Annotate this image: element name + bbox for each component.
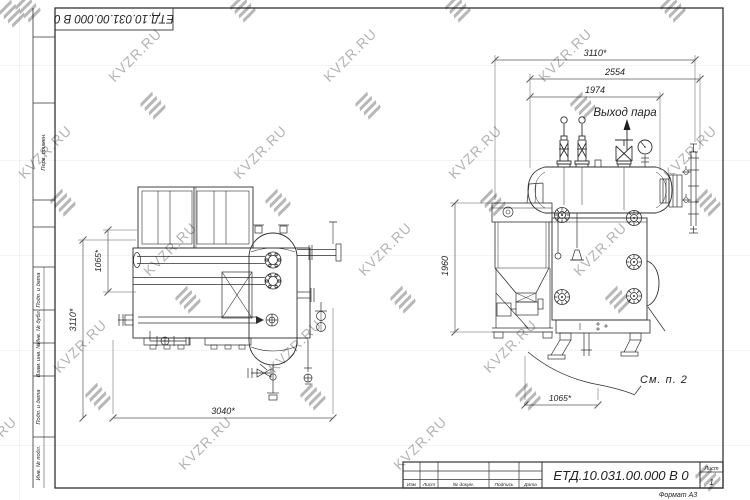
sheet-number: 1 [709,478,713,487]
scan-artifact-line [0,445,750,446]
sheet-cell-label: Лист [703,466,719,472]
scan-artifact-line [0,65,750,66]
title-doc-number: ЕТД.10.031.00.000 В 0 [553,468,689,483]
format-note: Формат А3 [659,492,697,499]
scan-artifact-line-vertical [19,0,20,500]
side-level-column [660,144,699,233]
side-label-perv-primen: Перв. примен. [41,133,47,170]
steam-outlet-label: Выход пара [593,107,656,119]
plan-platform [138,187,253,248]
see-item-note: См. п. 2 [640,374,688,386]
top-stamp: ЕТД.10.031.00.000 В 0 [54,8,174,30]
plan-right-fittings [297,222,341,332]
drawing-sheet: Перв. примен. Подп. и дата Инв. № дубл. … [0,0,750,500]
side-body [552,208,665,332]
side-dim-overall-text: 3110* [584,48,607,58]
side-foundation-leader [528,352,641,395]
plan-drum [249,225,297,365]
side-dim-height-text: 1960 [440,256,450,276]
rev-col-data: Дата [523,482,537,488]
side-base [548,320,650,359]
scan-artifact-line [0,350,750,351]
plan-view: 3110* 1065* 3040* [68,187,341,422]
side-label-podp-data-2: Подп. и дата [36,389,42,424]
rev-col-ndokum: № докум. [453,482,474,488]
plan-pipes [118,253,278,327]
side-label-vzam-inv: Взам. инв. № [36,343,42,378]
plan-dim-drum-offset-text: 1065* [93,249,103,272]
side-dim-drum-text: 1974 [585,85,605,95]
drawing-linework: Перв. примен. Подп. и дата Инв. № дубл. … [0,0,750,500]
scan-artifact-line [0,160,750,161]
gost-frame-side-labels: Перв. примен. Подп. и дата Инв. № дубл. … [36,133,47,480]
side-hopper [492,203,553,338]
rev-col-izm: Изм [407,482,417,488]
side-label-inv-podl: Инв. № подл. [36,446,42,481]
side-label-podp-data-1: Подп. и дата [36,272,42,307]
title-block: ЕТД.10.031.00.000 В 0 Изм Лист № докум. … [403,462,723,499]
steam-outlet-arrow [624,119,631,150]
side-view: 3110* 2554 1974 1960 1065* Выход пара См… [440,48,704,409]
plan-dim-height-text: 3110* [68,308,78,331]
plan-dim-width-text: 3040* [211,406,235,416]
side-label-inv-dubl: Инв. № дубл. [36,310,42,344]
side-drum [528,167,672,213]
side-pressure-gauge [638,140,652,167]
plan-drain-fittings [150,331,312,400]
top-stamp-doc-number: ЕТД.10.031.00.000 В 0 [54,12,174,24]
side-steam-valve [615,140,633,167]
side-dim-base-text: 1065* [549,393,572,403]
scan-artifact-line [0,255,750,256]
rev-col-podpis: Подпись [494,482,514,488]
rev-col-list: Лист [422,482,435,488]
side-dim-shell-text: 2554 [604,67,625,77]
